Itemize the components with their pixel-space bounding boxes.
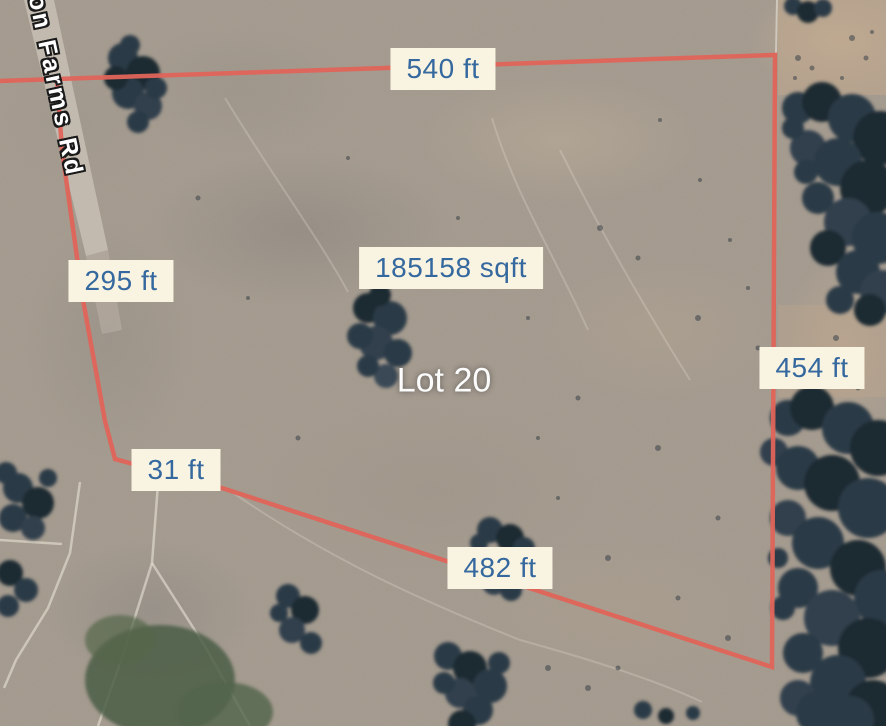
measurement-left-295ft: 295 ft [68, 260, 173, 302]
fence-line [776, 0, 777, 53]
measurement-right-454ft: 454 ft [759, 347, 864, 389]
lot-name-label: Lot 20 [397, 362, 492, 401]
lot-area-label: 185158 sqft [359, 247, 543, 289]
measurement-bottom-482ft: 482 ft [447, 547, 552, 589]
measurement-top-540ft: 540 ft [390, 48, 495, 90]
satellite-map[interactable]: on Farms Rd 540 ft 295 ft 185158 sqft 45… [0, 0, 886, 726]
measurement-bottom-short-31ft: 31 ft [132, 449, 221, 491]
